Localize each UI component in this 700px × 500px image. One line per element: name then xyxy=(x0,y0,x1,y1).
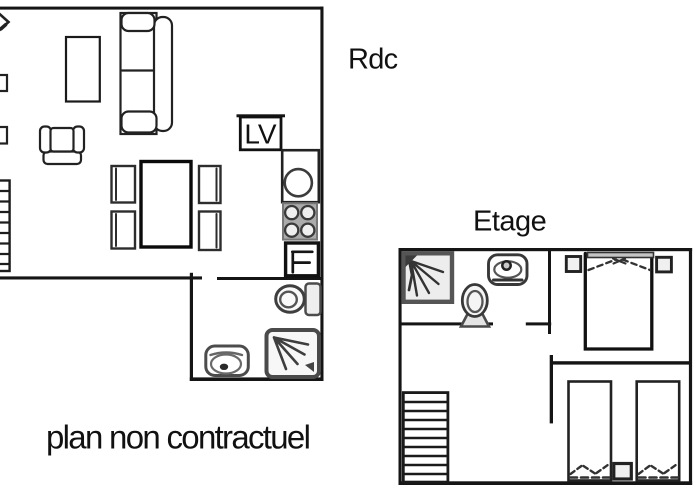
svg-text:plan non contractuel: plan non contractuel xyxy=(46,419,310,456)
svg-text:Etage: Etage xyxy=(473,206,546,238)
svg-text:Rdc: Rdc xyxy=(348,44,398,76)
svg-text:LV: LV xyxy=(244,119,276,150)
